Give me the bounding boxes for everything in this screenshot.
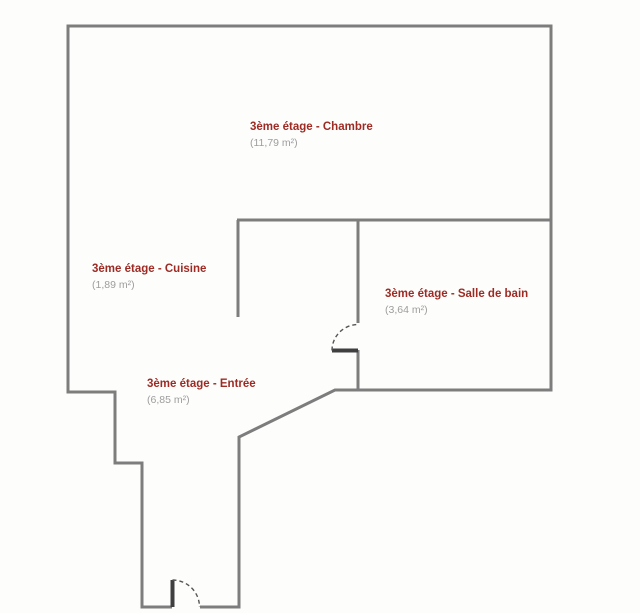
room-area-salle-de-bain: (3,64 m²) (385, 303, 528, 318)
entrance-door-swing-arc (173, 580, 200, 607)
bathroom-door-swing-arc (332, 325, 358, 351)
floorplan-drawing (0, 0, 640, 613)
room-name-chambre: 3ème étage - Chambre (250, 120, 373, 135)
room-name-entree: 3ème étage - Entrée (147, 377, 256, 392)
room-area-chambre: (11,79 m²) (250, 136, 373, 151)
room-area-cuisine: (1,89 m²) (92, 278, 206, 293)
room-label-salle-de-bain: 3ème étage - Salle de bain (3,64 m²) (385, 287, 528, 318)
room-area-entree: (6,85 m²) (147, 393, 256, 408)
room-label-chambre: 3ème étage - Chambre (11,79 m²) (250, 120, 373, 151)
floorplan: 3ème étage - Chambre (11,79 m²) 3ème éta… (0, 0, 640, 613)
room-label-cuisine: 3ème étage - Cuisine (1,89 m²) (92, 262, 206, 293)
room-name-cuisine: 3ème étage - Cuisine (92, 262, 206, 277)
room-name-salle-de-bain: 3ème étage - Salle de bain (385, 287, 528, 302)
room-label-entree: 3ème étage - Entrée (6,85 m²) (147, 377, 256, 408)
